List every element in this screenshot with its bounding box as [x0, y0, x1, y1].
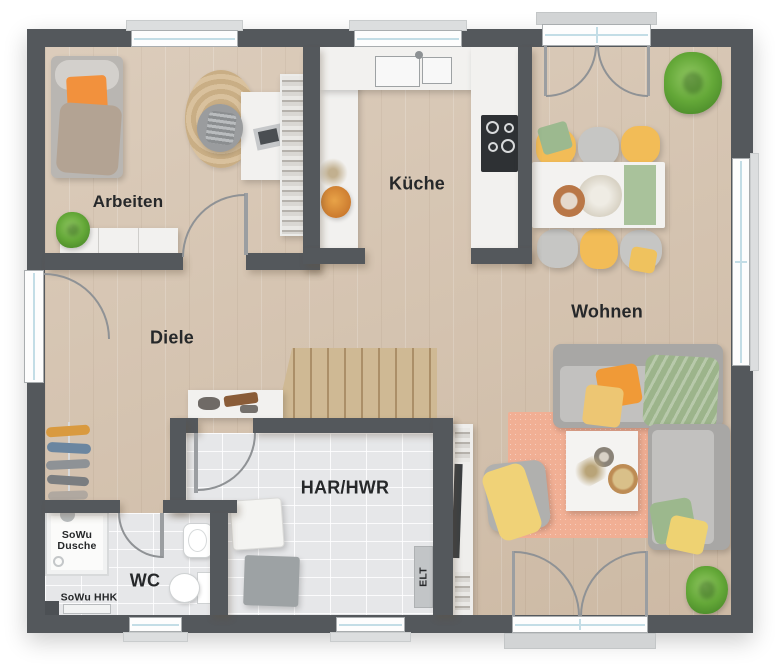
burner-4: [501, 139, 515, 153]
wall-har-top-right: [253, 418, 453, 433]
shower-drain: [53, 556, 64, 567]
table-runner: [624, 165, 656, 225]
wall-arbeiten-bottom-left: [45, 253, 183, 270]
sofa-pillow-yellow: [582, 384, 625, 428]
label-wohnen: Wohnen: [571, 302, 643, 323]
label-kueche: Küche: [389, 174, 445, 195]
burner-1: [486, 121, 499, 134]
wall-har-right: [433, 418, 453, 615]
washbasin-bowl: [188, 529, 207, 552]
label-arbeiten: Arbeiten: [93, 192, 164, 212]
sofa-blanket-green: [642, 354, 720, 430]
kitchen-sink-basin-1: [375, 56, 420, 87]
front-door: [24, 270, 44, 383]
label-har-hwr: HAR/HWR: [301, 478, 389, 499]
label-diele: Diele: [150, 328, 194, 349]
dining-chair-cushion-yellow: [628, 246, 658, 274]
dining-chair-yellow-2: [621, 126, 660, 164]
label-sowu-hhk: SoWu HHK: [61, 593, 118, 604]
sill-wc: [123, 632, 188, 642]
burner-2: [504, 123, 514, 133]
burner-3: [488, 142, 498, 152]
wall-wc-right: [210, 513, 228, 615]
dining-chair-yellow-3: [580, 229, 618, 269]
window-right: [732, 158, 750, 366]
kitchen-faucet: [415, 51, 423, 59]
hall-decor-3: [240, 405, 258, 413]
label-sowu-dusche: SoWu Dusche: [57, 530, 96, 552]
dryer-box: [243, 555, 300, 607]
wall-wc-top-right: [163, 500, 237, 513]
wall-diele-har: [170, 418, 186, 513]
label-elt: ELT: [419, 567, 430, 587]
wall-kueche-stub-left: [303, 248, 365, 264]
wall-wc-top-left: [45, 500, 120, 513]
staircase: [276, 348, 437, 418]
wall-kueche-stub-right: [471, 248, 532, 264]
copper-bowl: [553, 185, 585, 217]
floor-plan: Arbeiten Küche Wohnen Diele HAR/HWR WC S…: [0, 0, 775, 664]
window-wc: [129, 617, 182, 632]
service-shaft: [45, 601, 59, 616]
table-flowers: [578, 175, 622, 217]
dining-chair-gray-1: [578, 127, 619, 167]
label-wc: WC: [130, 571, 160, 592]
toilet-bowl: [169, 573, 200, 603]
office-chair-cushion: [205, 110, 237, 146]
sill-har: [330, 632, 411, 642]
window-kueche: [354, 30, 462, 47]
wall-arbeiten-kueche: [303, 47, 320, 270]
towel-radiator: [63, 604, 111, 614]
kitchen-sink-basin-2: [422, 57, 452, 84]
sill-right: [750, 153, 759, 371]
tv-sideboard-books-2: [455, 572, 470, 610]
tv-sideboard-books: [455, 428, 470, 462]
dining-chair-gray-2: [537, 229, 578, 268]
window-har: [336, 617, 405, 632]
french-door-top: [542, 24, 651, 46]
wall-kueche-right: [518, 47, 532, 263]
french-door-bottom: [512, 616, 648, 633]
window-arbeiten: [131, 30, 238, 47]
daybed-blanket: [56, 102, 123, 176]
terrace-pad-bottom: [504, 633, 656, 649]
table-tray: [608, 464, 638, 494]
hall-decor-1: [198, 397, 220, 410]
washing-machine: [229, 497, 284, 551]
